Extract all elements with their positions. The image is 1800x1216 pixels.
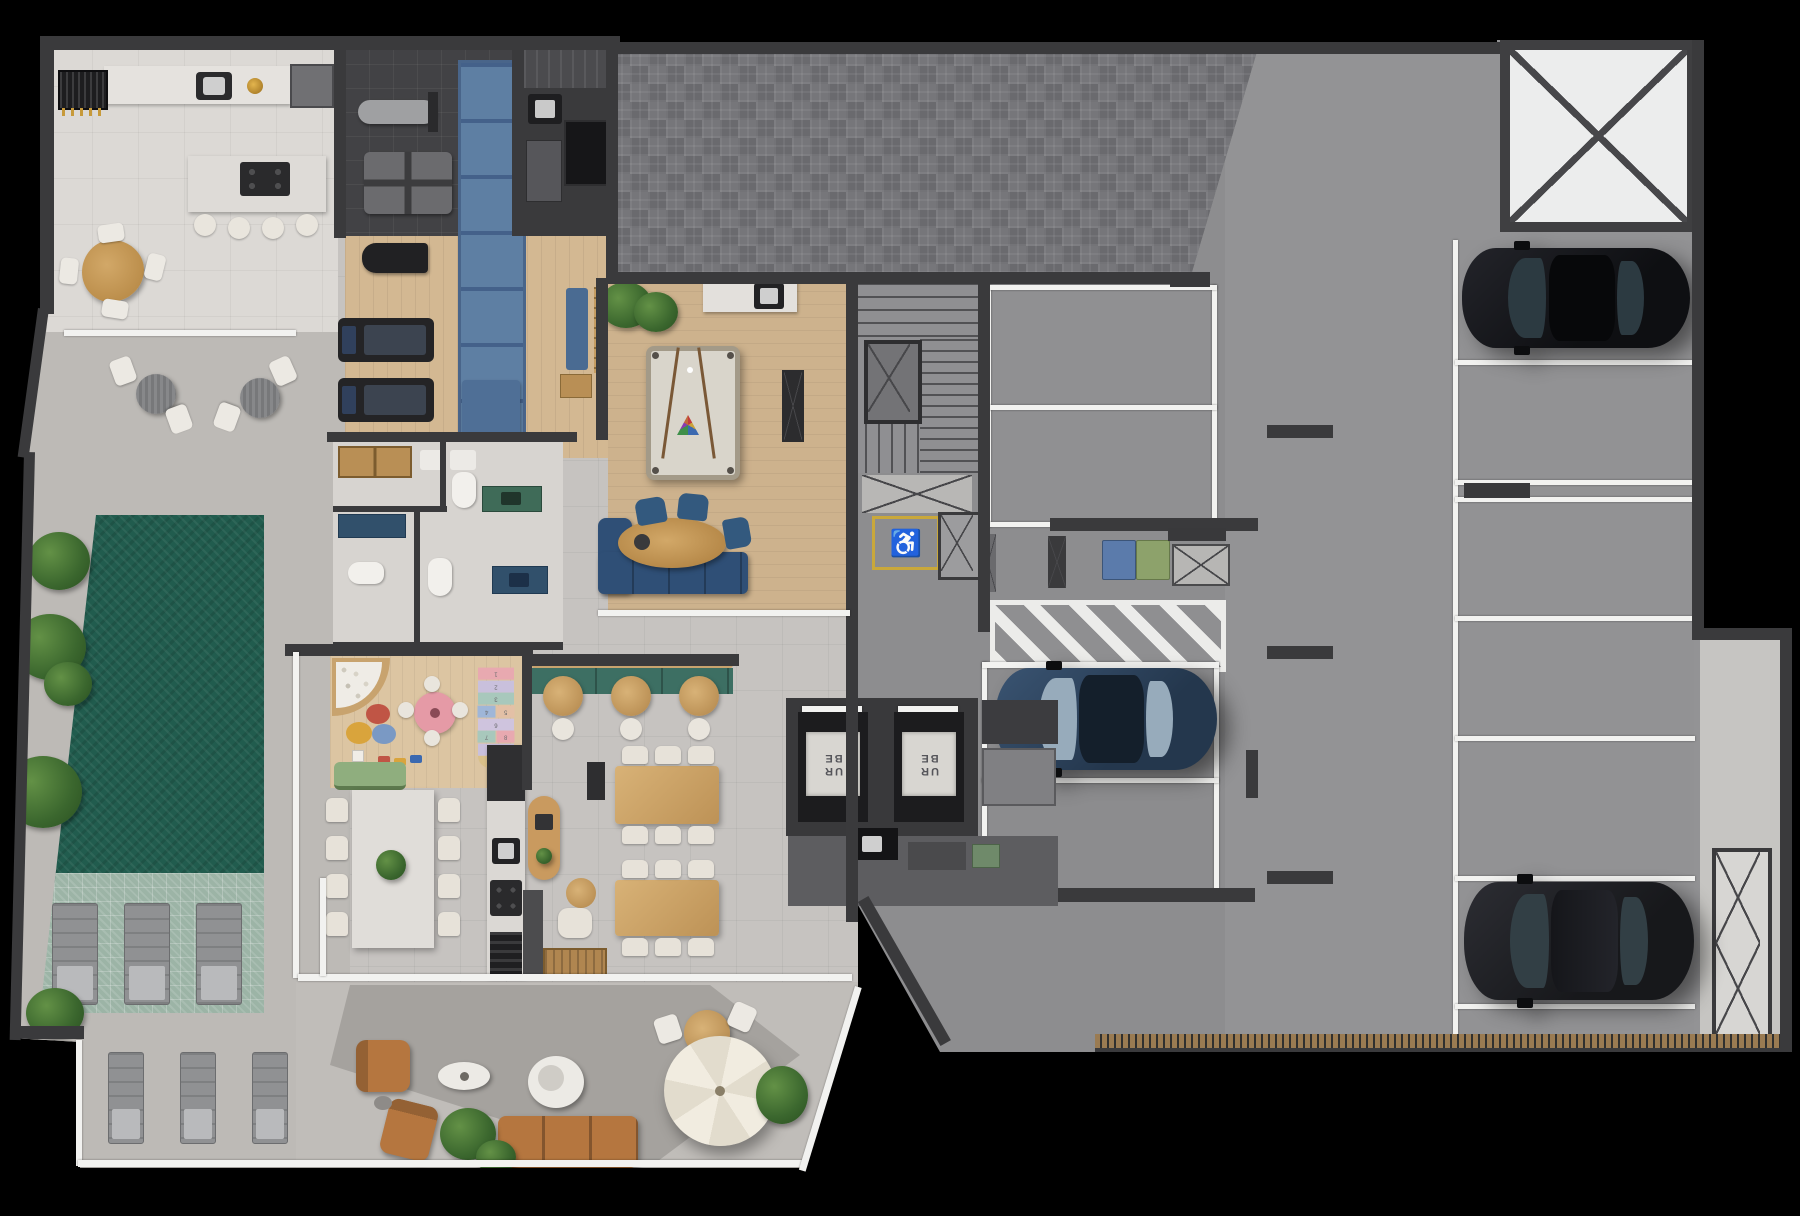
wall-kitchen-left <box>512 44 522 236</box>
wall-kids-top <box>285 644 533 656</box>
wall-right-top <box>1692 40 1704 636</box>
glass-party-left <box>293 652 299 978</box>
parcel-lockers <box>982 700 1058 744</box>
stair-lower-box <box>938 512 982 580</box>
elevator-brand-line2: BE <box>823 751 842 764</box>
service-bench <box>908 842 966 870</box>
wall-gym-bath <box>327 432 577 442</box>
outer-wall-top <box>40 36 620 50</box>
wall-court-garage-cap <box>1170 272 1210 287</box>
wall-stair-right <box>978 272 990 632</box>
rail-terrace-left <box>76 1040 82 1166</box>
elevator-bank: UR BE UR BE <box>786 698 978 836</box>
stair-flight <box>852 418 920 473</box>
glass-game-lobby <box>598 610 850 616</box>
wall-gourmet-gym <box>334 44 346 238</box>
stair-shaft <box>864 340 922 424</box>
wall-kitchen-court <box>606 44 618 278</box>
wall-alcove-top <box>1692 628 1790 640</box>
wall-game-top <box>606 272 858 284</box>
sink-basin <box>862 836 882 852</box>
storage-cabinet <box>982 748 1056 806</box>
wheelchair-icon: ♿ <box>890 530 922 556</box>
wall-core-left <box>846 272 858 922</box>
elevator-brand-line1: UR <box>919 764 939 777</box>
glass-gourmet-terrace <box>64 330 296 336</box>
stair-flight <box>920 339 980 473</box>
floor-plan-render: 1 2 3 4 5 6 7 8 9 10 <box>0 0 1800 1216</box>
elevator-cab: UR BE <box>894 712 964 822</box>
wall-kids-right <box>522 656 532 790</box>
outer-wall-left <box>40 36 54 314</box>
outer-wall-top-court <box>612 42 1500 54</box>
glass-pool-terrace-divider <box>320 878 326 976</box>
core: ♿ UR BE UR BE <box>0 0 1800 1216</box>
service-bin <box>972 844 1000 868</box>
elevator-rug: UR BE <box>902 732 956 796</box>
landing <box>862 475 972 513</box>
glass-party-terrace <box>298 974 852 981</box>
wall-alcove-right <box>1780 628 1792 1052</box>
accessible-spot: ♿ <box>872 516 940 570</box>
wall-court-garage <box>850 272 1208 284</box>
landing-x <box>862 475 972 513</box>
elevator-brand-line2: BE <box>919 751 938 764</box>
wall-game-left <box>596 278 608 440</box>
shaft-x <box>868 344 910 412</box>
rail-terrace-bottom <box>78 1160 804 1167</box>
elevator-brand-line1: UR <box>823 764 843 777</box>
stair-flight <box>852 283 980 339</box>
lower-box-x <box>941 515 973 571</box>
wall-banquette-back <box>527 654 739 666</box>
